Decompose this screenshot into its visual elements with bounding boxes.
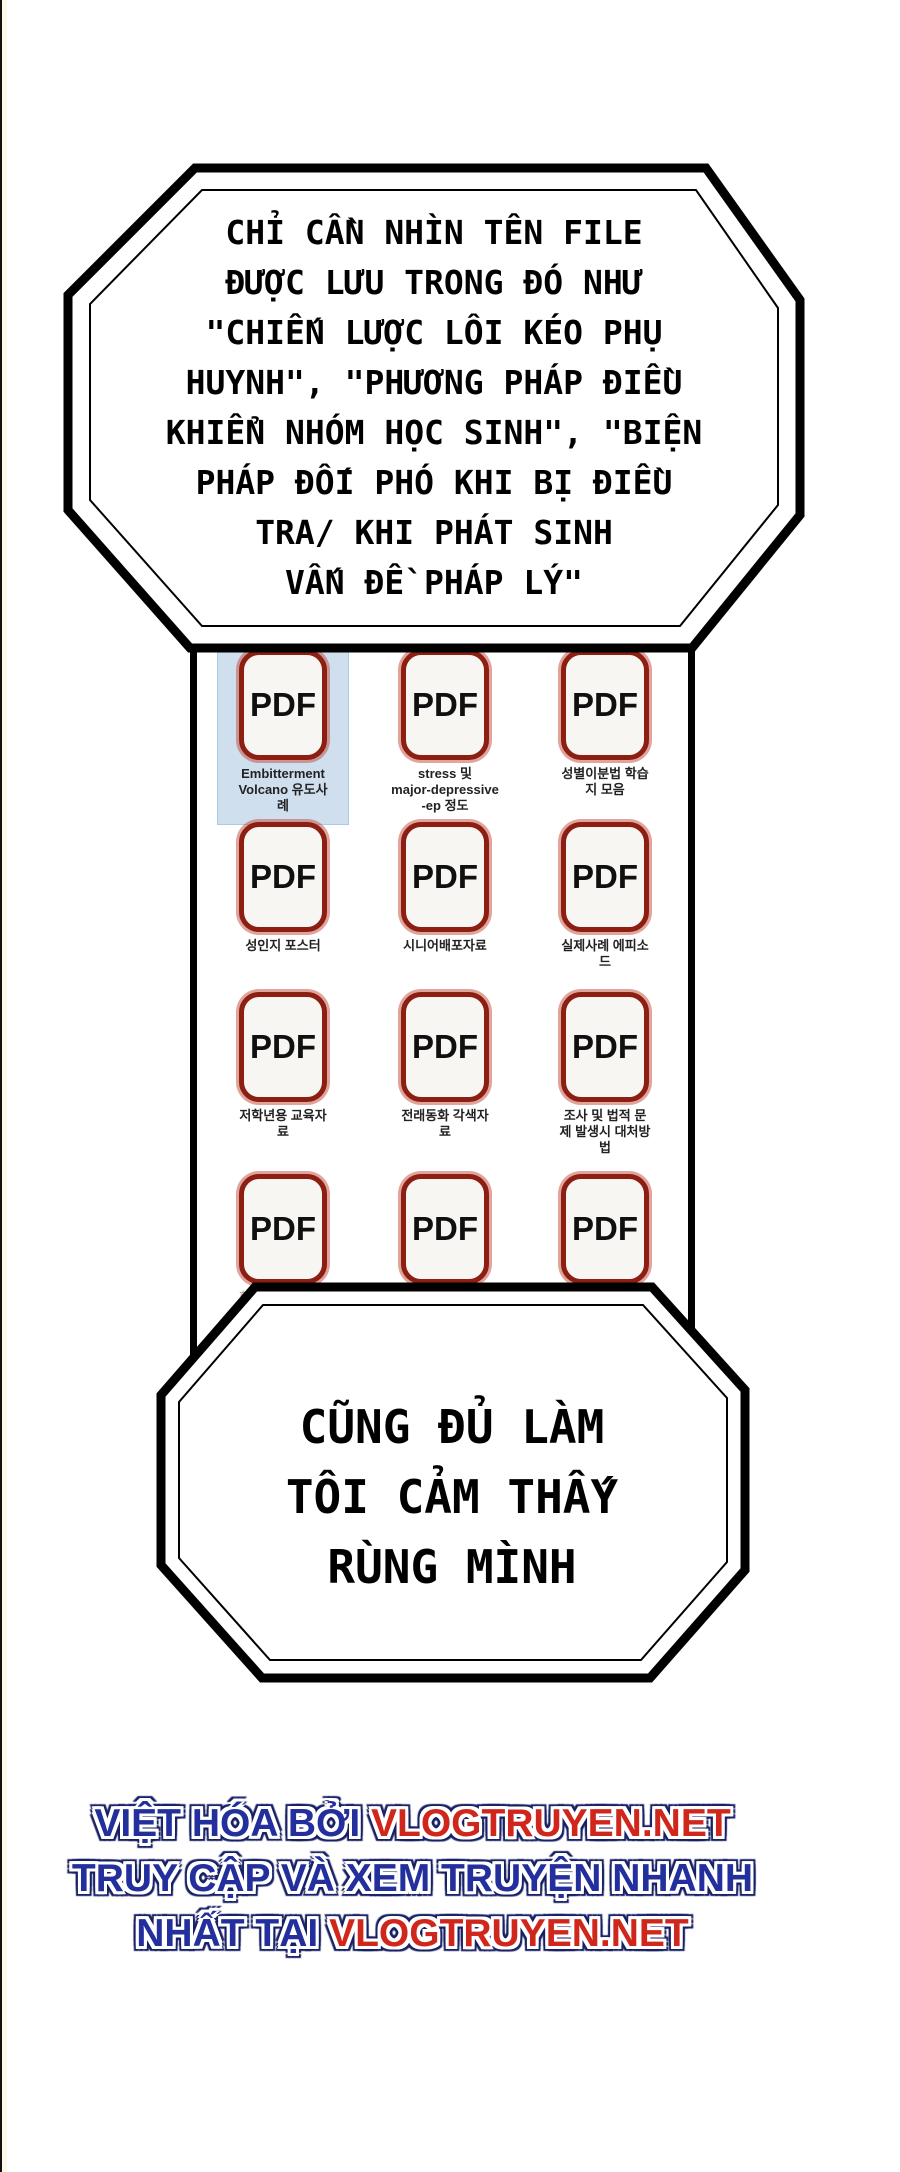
- file-item[interactable]: PDF 저학년용 교육자 료: [218, 992, 348, 1140]
- pdf-file-icon: PDF: [401, 650, 489, 760]
- watermark-line: VIỆT HÓA BỞI VLOGTRUYEN.NET: [0, 1796, 825, 1851]
- watermark-line: NHẤT TẠI VLOGTRUYEN.NET: [0, 1906, 825, 1961]
- bubble-line: KHIỂN NHÓM HỌC SINH", "BIỆN: [84, 408, 784, 458]
- panel-border-left: [190, 645, 197, 1360]
- file-item[interactable]: PDF 전래동화 각색자 료: [380, 992, 510, 1140]
- file-caption: 전래동화 각색자 료: [380, 1108, 510, 1140]
- file-item[interactable]: PDF 조사 및 법적 문 제 발생시 대처방 법: [540, 992, 670, 1156]
- bottom-bubble-text: CŨNG ĐỦ LÀM TÔI CẢM THẤY RÙNG MÌNH: [157, 1392, 747, 1602]
- pdf-file-icon: PDF: [401, 1174, 489, 1284]
- bubble-line: TRA/ KHI PHÁT SINH: [84, 508, 784, 558]
- pdf-file-icon: PDF: [561, 650, 649, 760]
- file-item[interactable]: PDF 시니어배포자료: [380, 822, 510, 954]
- file-caption: 저학년용 교육자 료: [218, 1108, 348, 1140]
- panel-border-right: [688, 645, 695, 1340]
- watermark: VIỆT HÓA BỞI VLOGTRUYEN.NET TRUY CẬP VÀ …: [0, 1796, 825, 1961]
- pdf-file-icon: PDF: [561, 992, 649, 1102]
- bubble-line: TÔI CẢM THẤY: [157, 1462, 747, 1532]
- file-item[interactable]: PDF 성인지 포스터: [218, 822, 348, 954]
- top-bubble-text: CHỈ CẦN NHÌN TÊN FILE ĐƯỢC LƯU TRONG ĐÓ …: [84, 208, 784, 608]
- site-name: VLOGTRUYEN.NET: [329, 1912, 689, 1955]
- bubble-line: "CHIẾN LƯỢC LÔI KÉO PHỤ: [84, 308, 784, 358]
- pdf-file-icon: PDF: [561, 1174, 649, 1284]
- file-caption: Embitterment Volcano 유도사 례: [218, 766, 348, 814]
- bubble-line: VẤN ĐỀ PHÁP LÝ": [84, 558, 784, 608]
- file-caption: 성인지 포스터: [218, 938, 348, 954]
- file-item[interactable]: PDF 실제사례 에피소 드: [540, 822, 670, 970]
- bubble-line: ĐƯỢC LƯU TRONG ĐÓ NHƯ: [84, 258, 784, 308]
- watermark-text: NHẤT TẠI: [136, 1912, 329, 1955]
- bubble-line: CŨNG ĐỦ LÀM: [157, 1392, 747, 1462]
- pdf-file-icon: PDF: [401, 992, 489, 1102]
- comic-page: PDF Embitterment Volcano 유도사 례 PDF stres…: [0, 0, 900, 2172]
- bubble-line: PHÁP ĐỐI PHÓ KHI BỊ ĐIỀU: [84, 458, 784, 508]
- pdf-file-icon: PDF: [561, 822, 649, 932]
- bubble-line: CHỈ CẦN NHÌN TÊN FILE: [84, 208, 784, 258]
- watermark-line: TRUY CẬP VÀ XEM TRUYỆN NHANH: [0, 1851, 825, 1906]
- pdf-file-icon: PDF: [239, 822, 327, 932]
- pdf-file-icon: PDF: [239, 1174, 327, 1284]
- watermark-text: TRUY CẬP VÀ XEM TRUYỆN NHANH: [72, 1857, 753, 1900]
- pdf-file-icon: PDF: [239, 992, 327, 1102]
- site-name: VLOGTRUYEN.NET: [371, 1802, 731, 1845]
- file-caption: 시니어배포자료: [380, 938, 510, 954]
- file-item[interactable]: PDF stress 및 major-depressive -ep 정도: [380, 650, 510, 814]
- file-caption: 성별이분법 학습 지 모음: [540, 766, 670, 798]
- file-item-selected[interactable]: PDF Embitterment Volcano 유도사 례: [218, 646, 348, 824]
- pdf-file-icon: PDF: [239, 650, 327, 760]
- file-caption: 조사 및 법적 문 제 발생시 대처방 법: [540, 1108, 670, 1156]
- bubble-line: HUYNH", "PHƯƠNG PHÁP ĐIỀU: [84, 358, 784, 408]
- bubble-line: RÙNG MÌNH: [157, 1532, 747, 1602]
- file-caption: stress 및 major-depressive -ep 정도: [380, 766, 510, 814]
- pdf-file-icon: PDF: [401, 822, 489, 932]
- file-item[interactable]: PDF 성별이분법 학습 지 모음: [540, 650, 670, 798]
- watermark-text: VIỆT HÓA BỞI: [94, 1802, 371, 1845]
- file-caption: 실제사례 에피소 드: [540, 938, 670, 970]
